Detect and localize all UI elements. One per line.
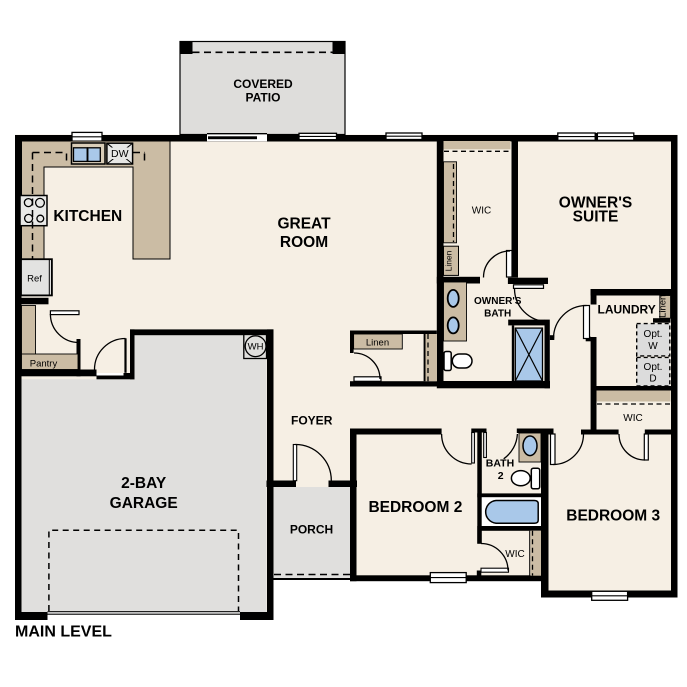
svg-text:W: W <box>648 341 658 352</box>
svg-text:WIC: WIC <box>505 549 524 560</box>
svg-text:BEDROOM 3: BEDROOM 3 <box>566 507 660 524</box>
svg-text:2-BAY: 2-BAY <box>121 475 167 492</box>
svg-text:SUITE: SUITE <box>573 209 619 226</box>
svg-text:DW: DW <box>111 148 129 160</box>
svg-text:Linen: Linen <box>444 250 454 271</box>
svg-text:2: 2 <box>498 470 504 482</box>
svg-text:PATIO: PATIO <box>246 91 281 105</box>
svg-text:GREAT: GREAT <box>277 216 331 233</box>
svg-text:WIC: WIC <box>472 206 491 217</box>
svg-text:Linen: Linen <box>658 295 669 318</box>
svg-text:FOYER: FOYER <box>291 414 333 428</box>
svg-text:D: D <box>649 374 656 385</box>
svg-text:ROOM: ROOM <box>280 234 328 251</box>
svg-text:Pantry: Pantry <box>30 358 58 369</box>
svg-text:LAUNDRY: LAUNDRY <box>597 302 655 316</box>
svg-text:MAIN LEVEL: MAIN LEVEL <box>15 624 112 641</box>
svg-text:BATH: BATH <box>486 458 514 470</box>
svg-text:GARAGE: GARAGE <box>110 495 178 512</box>
svg-text:Ref: Ref <box>27 274 42 285</box>
svg-text:Linen: Linen <box>366 337 389 348</box>
svg-text:OWNER'S: OWNER'S <box>474 296 522 307</box>
svg-text:BATH: BATH <box>484 308 511 319</box>
svg-text:WIC: WIC <box>623 413 642 424</box>
svg-text:COVERED: COVERED <box>233 77 293 91</box>
svg-text:BEDROOM 2: BEDROOM 2 <box>368 499 462 516</box>
svg-text:WH: WH <box>248 342 264 353</box>
svg-text:PORCH: PORCH <box>290 523 333 537</box>
svg-text:KITCHEN: KITCHEN <box>53 208 122 225</box>
svg-text:Opt.: Opt. <box>644 362 663 373</box>
svg-text:Opt.: Opt. <box>644 329 663 340</box>
